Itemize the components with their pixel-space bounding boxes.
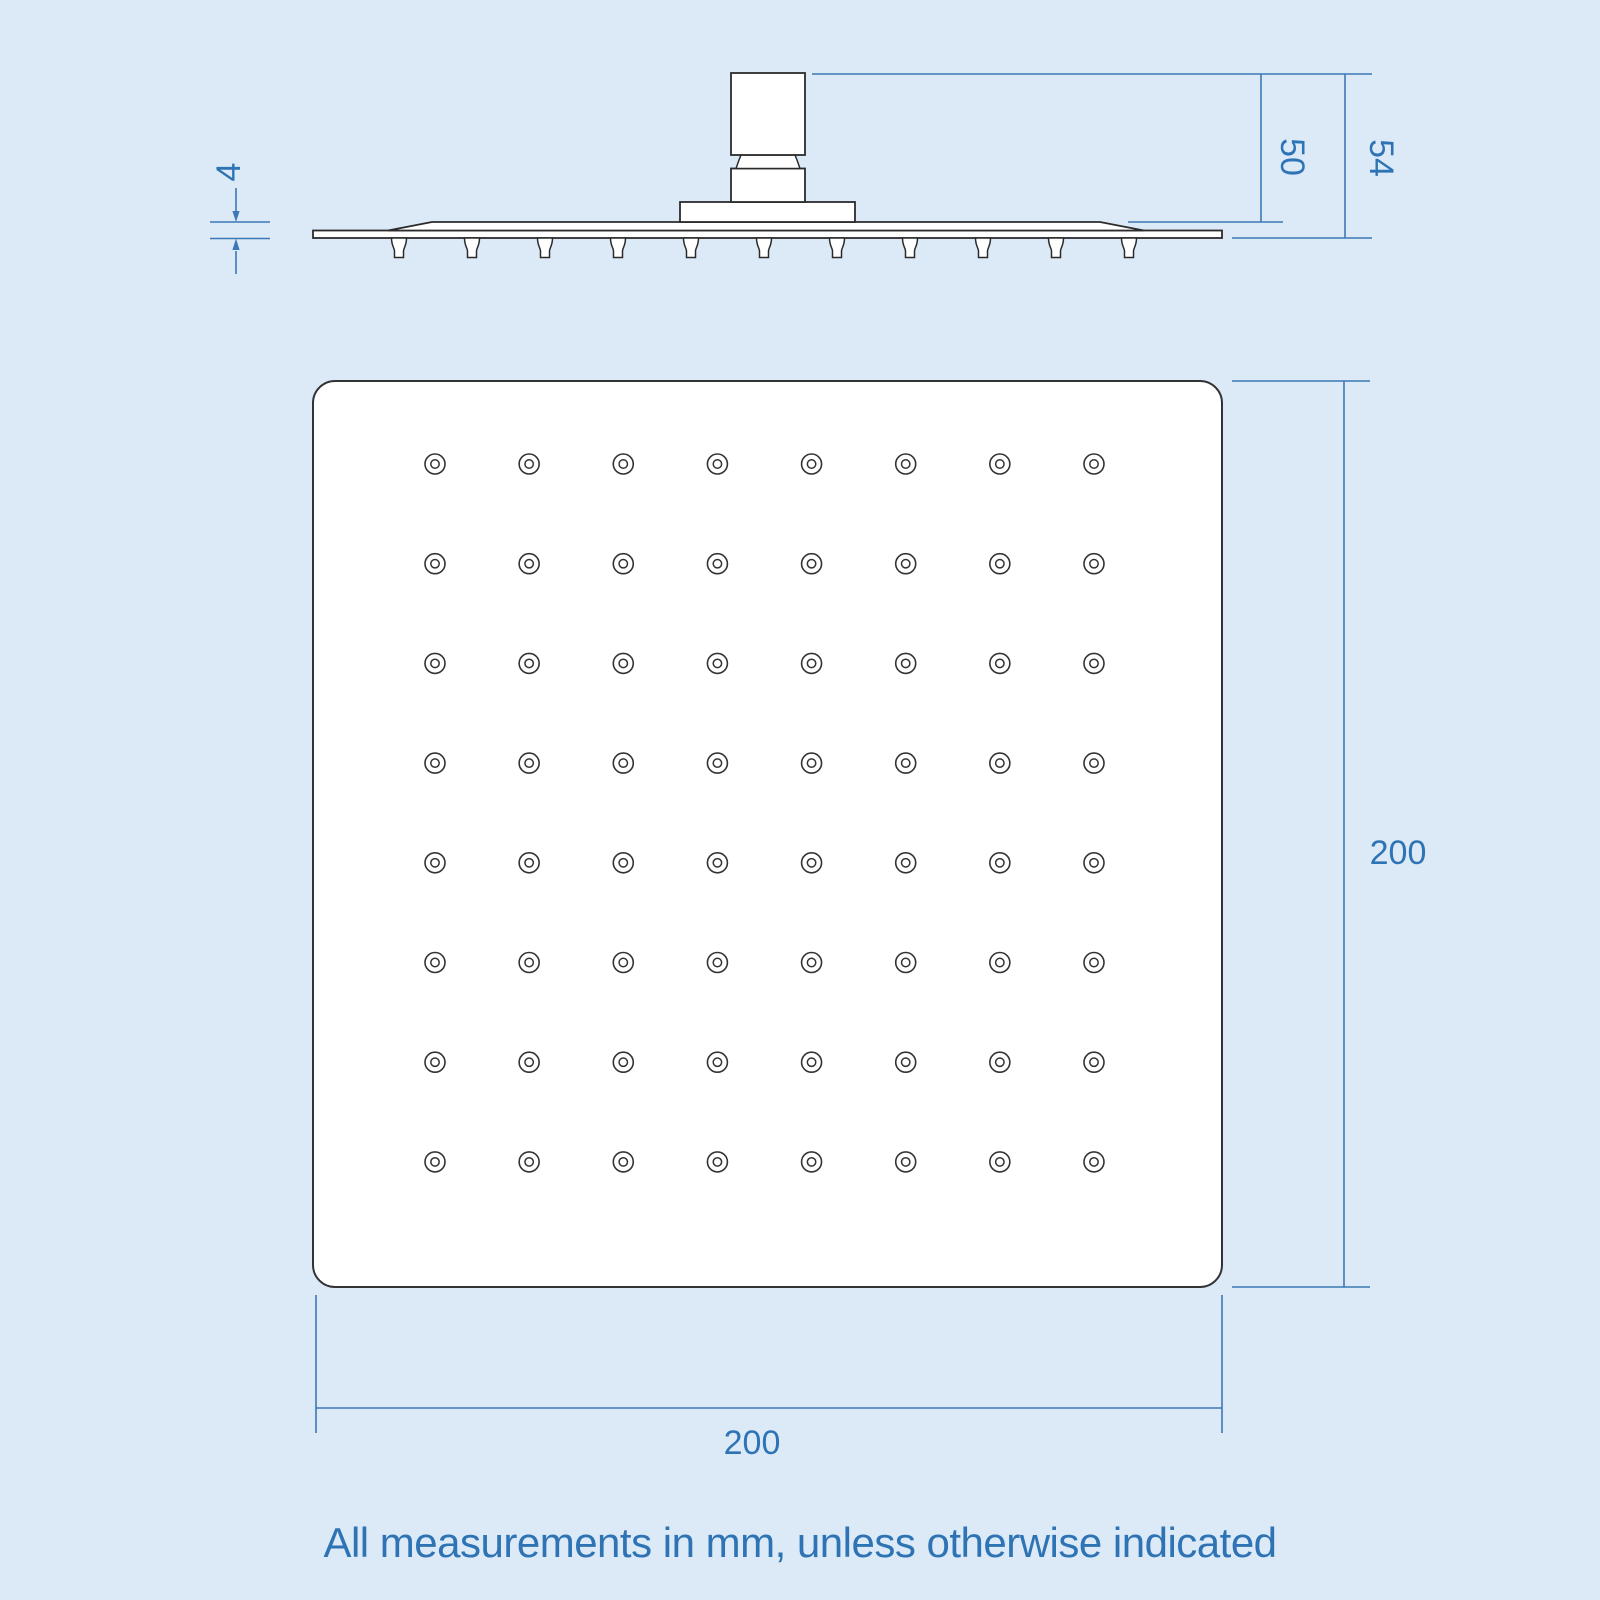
nozzle-hole-center [713,759,721,767]
shower-head-face [313,381,1222,1287]
face-view [313,381,1222,1287]
nozzle-hole-center [807,560,815,568]
side-nozzle [976,238,991,258]
side-nozzle [757,238,772,258]
connector-body [731,169,805,203]
nozzle-hole-center [619,759,627,767]
nozzle-hole-center [996,859,1004,867]
nozzle-hole-center [1090,759,1098,767]
dim-label-face-height: 200 [1370,834,1427,872]
nozzle-hole-center [902,460,910,468]
nozzle-hole-center [431,1058,439,1066]
nozzle-hole-center [1090,659,1098,667]
nozzle-hole-center [431,659,439,667]
dim-label-total-height: 54 [1362,139,1400,177]
nozzle-hole-center [713,1058,721,1066]
nozzle-hole-center [525,659,533,667]
dim-label-head-height: 50 [1273,138,1311,176]
nozzle-hole-center [619,560,627,568]
connector-neck [736,155,800,169]
nozzle-hole-center [996,1158,1004,1166]
nozzle-hole-center [713,1158,721,1166]
nozzle-hole-center [431,1158,439,1166]
nozzle-hole-center [1090,1058,1098,1066]
nozzle-hole-center [525,460,533,468]
nozzle-hole-center [525,1158,533,1166]
nozzle-hole-center [1090,1158,1098,1166]
measurement-note: All measurements in mm, unless otherwise… [323,1519,1276,1566]
nozzle-hole-center [996,460,1004,468]
nozzle-hole-center [902,958,910,966]
nozzle-hole-center [1090,958,1098,966]
nozzle-hole-center [996,958,1004,966]
dim-label-face-width: 200 [724,1424,781,1462]
connector-inlet [731,73,805,155]
nozzle-hole-center [713,460,721,468]
nozzle-hole-center [619,958,627,966]
side-profile-view [313,73,1222,258]
connector-flange [680,202,855,222]
nozzle-hole-center [619,460,627,468]
nozzle-hole-center [902,1058,910,1066]
nozzle-hole-center [807,958,815,966]
side-nozzle [611,238,626,258]
side-nozzle [1049,238,1064,258]
nozzle-hole-center [807,1158,815,1166]
side-nozzles [392,238,1137,258]
nozzle-hole-center [807,659,815,667]
nozzle-hole-center [525,1058,533,1066]
nozzle-hole-center [807,759,815,767]
side-nozzle [830,238,845,258]
nozzle-hole-center [807,1058,815,1066]
arrow-head-down-icon [232,211,239,222]
nozzle-hole-center [525,759,533,767]
nozzle-hole-center [713,859,721,867]
side-nozzle [538,238,553,258]
side-plate-bevel [388,222,1144,231]
nozzle-hole-center [1090,560,1098,568]
arrow-head-up-icon [232,239,239,251]
nozzle-hole-center [431,859,439,867]
nozzle-hole-center [902,560,910,568]
nozzle-hole-center [525,560,533,568]
nozzle-hole-center [525,859,533,867]
nozzle-hole-center [619,1058,627,1066]
side-nozzle [903,238,918,258]
side-nozzle [465,238,480,258]
shower-head-dimension-diagram: 50 54 4 200 [0,0,1600,1600]
nozzle-hole-center [902,1158,910,1166]
nozzle-hole-center [431,958,439,966]
side-nozzle [1122,238,1137,258]
nozzle-hole-center [713,659,721,667]
plate-thickness-dimension: 4 [210,163,270,274]
nozzle-hole-center [996,759,1004,767]
side-nozzle [392,238,407,258]
nozzle-hole-center [902,759,910,767]
nozzle-hole-center [713,560,721,568]
nozzle-hole-center [996,560,1004,568]
dim-label-plate-thickness: 4 [210,163,248,182]
nozzle-hole-center [619,659,627,667]
side-nozzle [684,238,699,258]
nozzle-hole-center [996,659,1004,667]
nozzle-hole-center [431,759,439,767]
nozzle-hole-center [807,460,815,468]
nozzle-hole-center [525,958,533,966]
nozzle-hole-center [1090,859,1098,867]
nozzle-hole-center [713,958,721,966]
nozzle-hole-center [431,560,439,568]
nozzle-hole-center [902,659,910,667]
technical-drawing-page: 50 54 4 200 [0,0,1600,1600]
nozzle-hole-center [619,859,627,867]
nozzle-hole-center [431,460,439,468]
nozzle-hole-center [807,859,815,867]
nozzle-hole-center [619,1158,627,1166]
nozzle-hole-center [996,1058,1004,1066]
nozzle-hole-center [1090,460,1098,468]
nozzle-hole-center [902,859,910,867]
side-plate [313,231,1222,239]
